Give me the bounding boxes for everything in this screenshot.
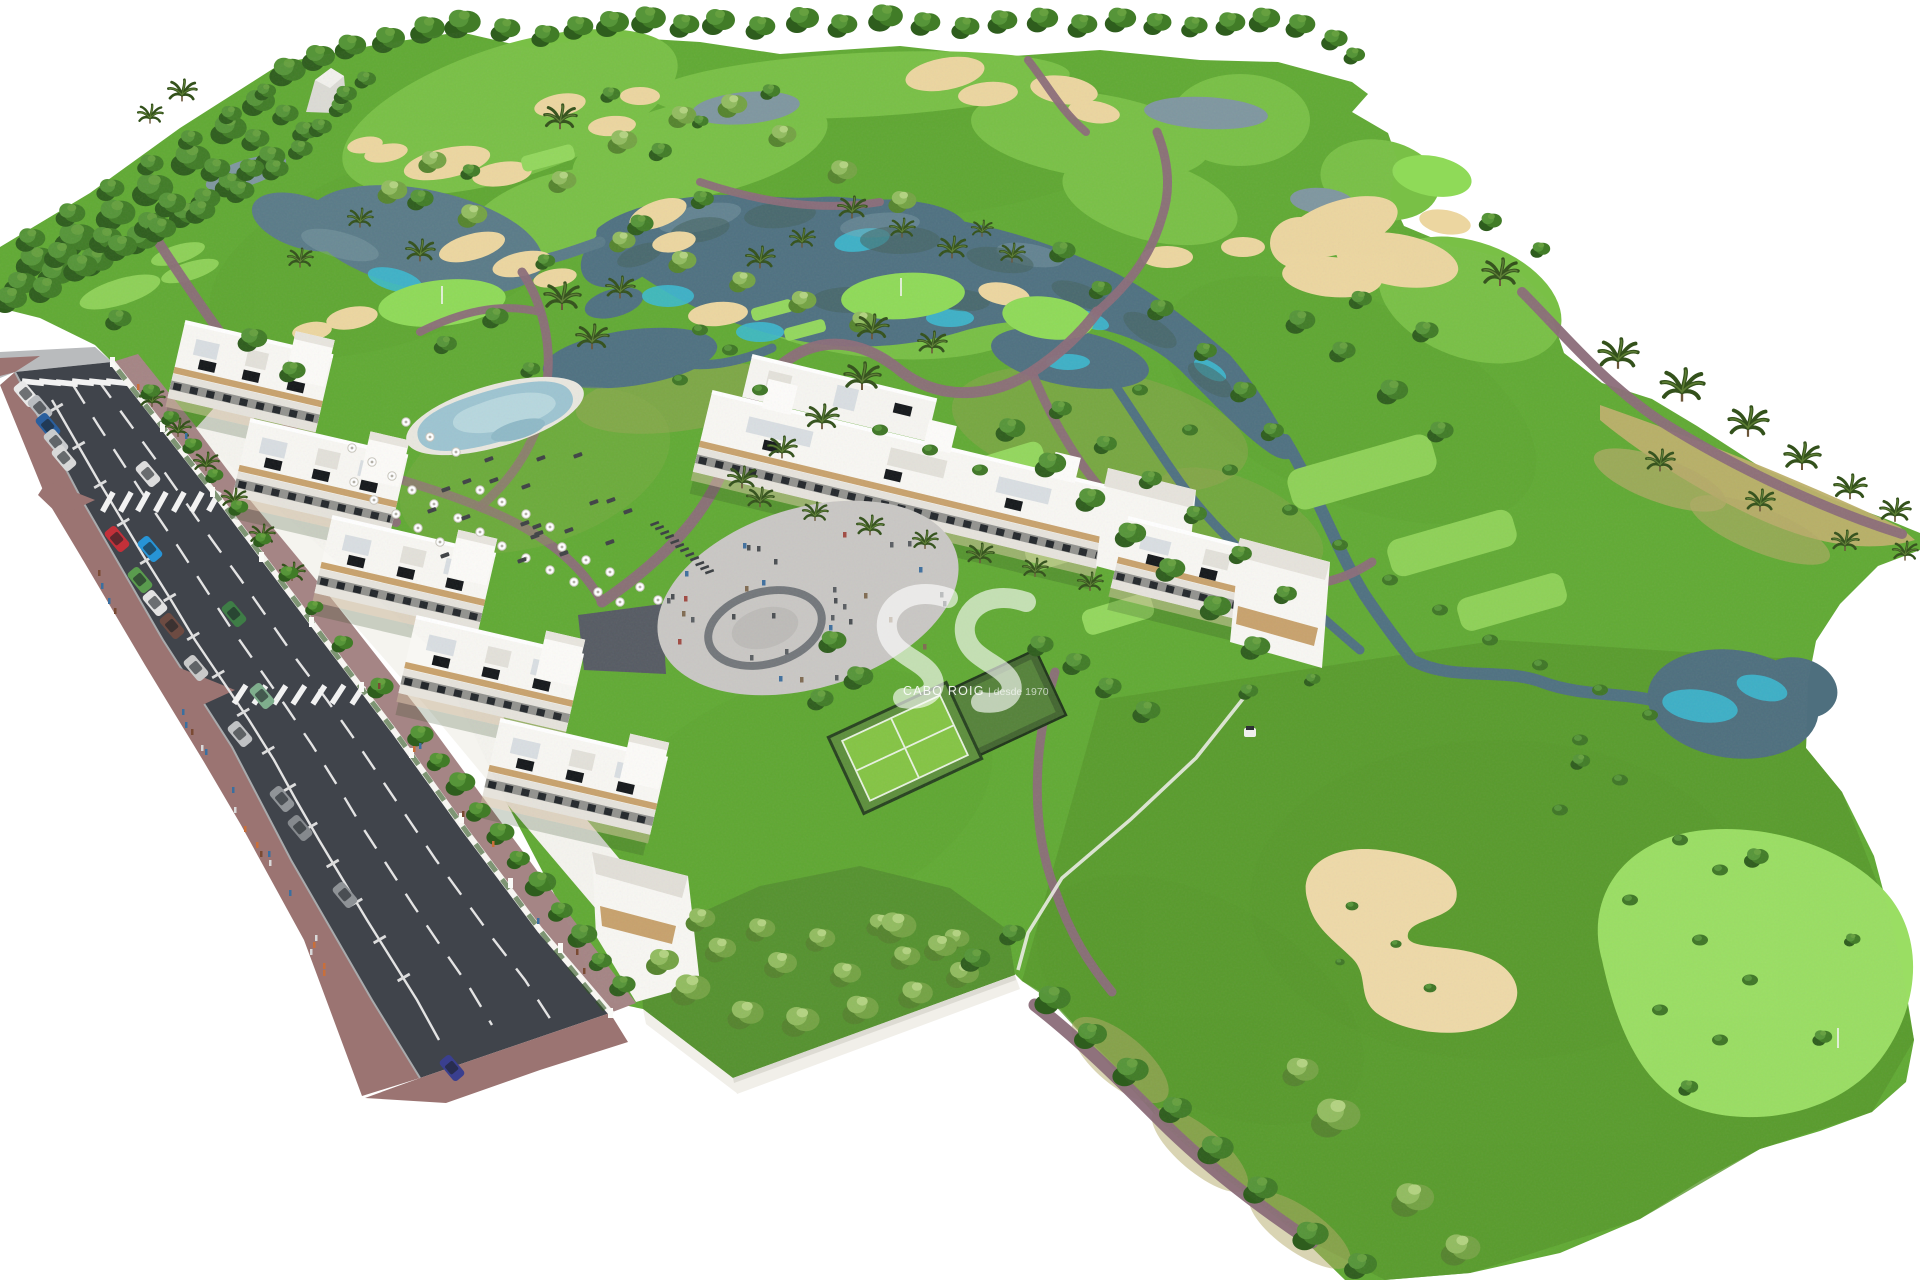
svg-text:CABO ROIG: CABO ROIG xyxy=(903,684,985,698)
svg-text:| desde 1970: | desde 1970 xyxy=(988,686,1049,698)
